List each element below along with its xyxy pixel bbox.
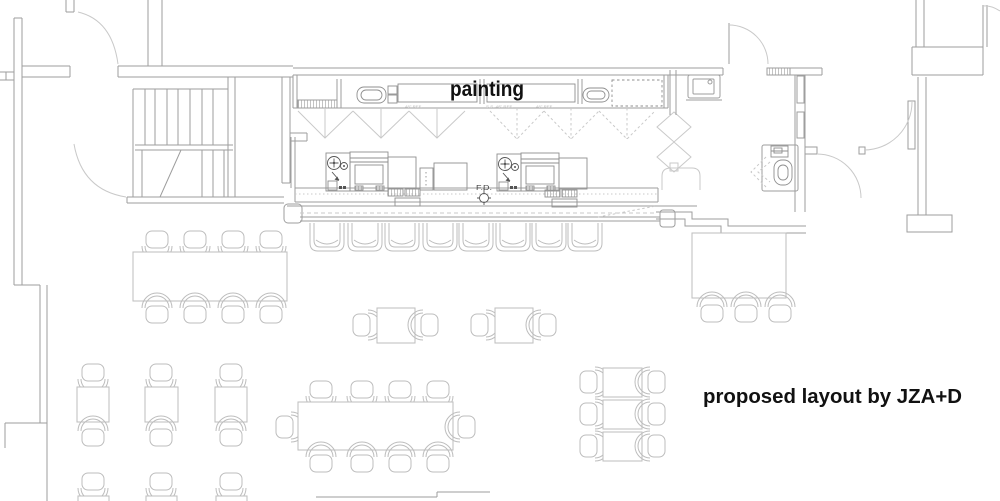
two-top-tables-stack [580,367,665,461]
wall-niche-upper [797,76,804,103]
desk-equipment [774,160,792,185]
two-top-tables-center [353,308,556,343]
door-arc-top-right [983,6,1000,11]
door-arc-stair-lobby [74,144,126,197]
ice-bin-right [559,158,587,189]
wall-niche-lower [797,112,804,138]
door-sill [767,68,790,75]
conference-table [276,381,475,472]
prep-station-right [521,153,559,191]
two-top-tables-row1 [77,364,247,446]
glass-rack-left [388,189,420,206]
attribution-label: proposed layout by JZA+D [703,386,962,408]
floor-drain-label: F.D. [476,183,492,192]
prep-station-left [350,152,388,191]
glass-rack-right [545,190,577,207]
door-arc-top-left [78,12,118,64]
bar-counter [287,137,697,221]
door-strike [859,147,865,154]
stairs [133,89,233,197]
banquette-table [692,233,795,322]
communal-table-upper [133,231,287,323]
counter-dashed-section [612,80,662,106]
bench [662,168,700,190]
refrigerator-label-left: 48" REF. [405,104,422,109]
refrigerator-label-right: 48" REF. [536,104,553,109]
two-top-tables-row2 [78,473,247,501]
bar-stools [310,223,602,251]
floor-plan-drawing: painting proposed layout by JZA+D F.D. 4… [0,0,1000,501]
refrigerator-label-center: S.S. 48" REF. [486,104,513,109]
espresso-machine-left [326,153,350,191]
door-stub [805,147,817,154]
pilaster-left [284,204,302,223]
floor-plan-page: painting proposed layout by JZA+D F.D. 4… [0,0,1000,501]
trash-chute [420,168,433,190]
walls [0,0,987,501]
ice-bin-left [388,157,416,188]
wall-bracket [6,72,14,80]
painting-label: painting [450,78,524,101]
door-arc-vestibule-left [817,154,861,198]
espresso-machine-right [497,154,521,191]
desk [762,145,798,191]
bar-equipment [326,152,587,207]
door-arc-service-room [729,25,768,64]
desk-chair-dashed [751,157,770,187]
counter-cabinet [434,163,467,190]
furniture [77,223,795,501]
column-footing [907,215,952,232]
door-arc-vestibule-right [864,102,912,150]
service-room [662,70,798,191]
gate-dashed-line [598,206,656,217]
